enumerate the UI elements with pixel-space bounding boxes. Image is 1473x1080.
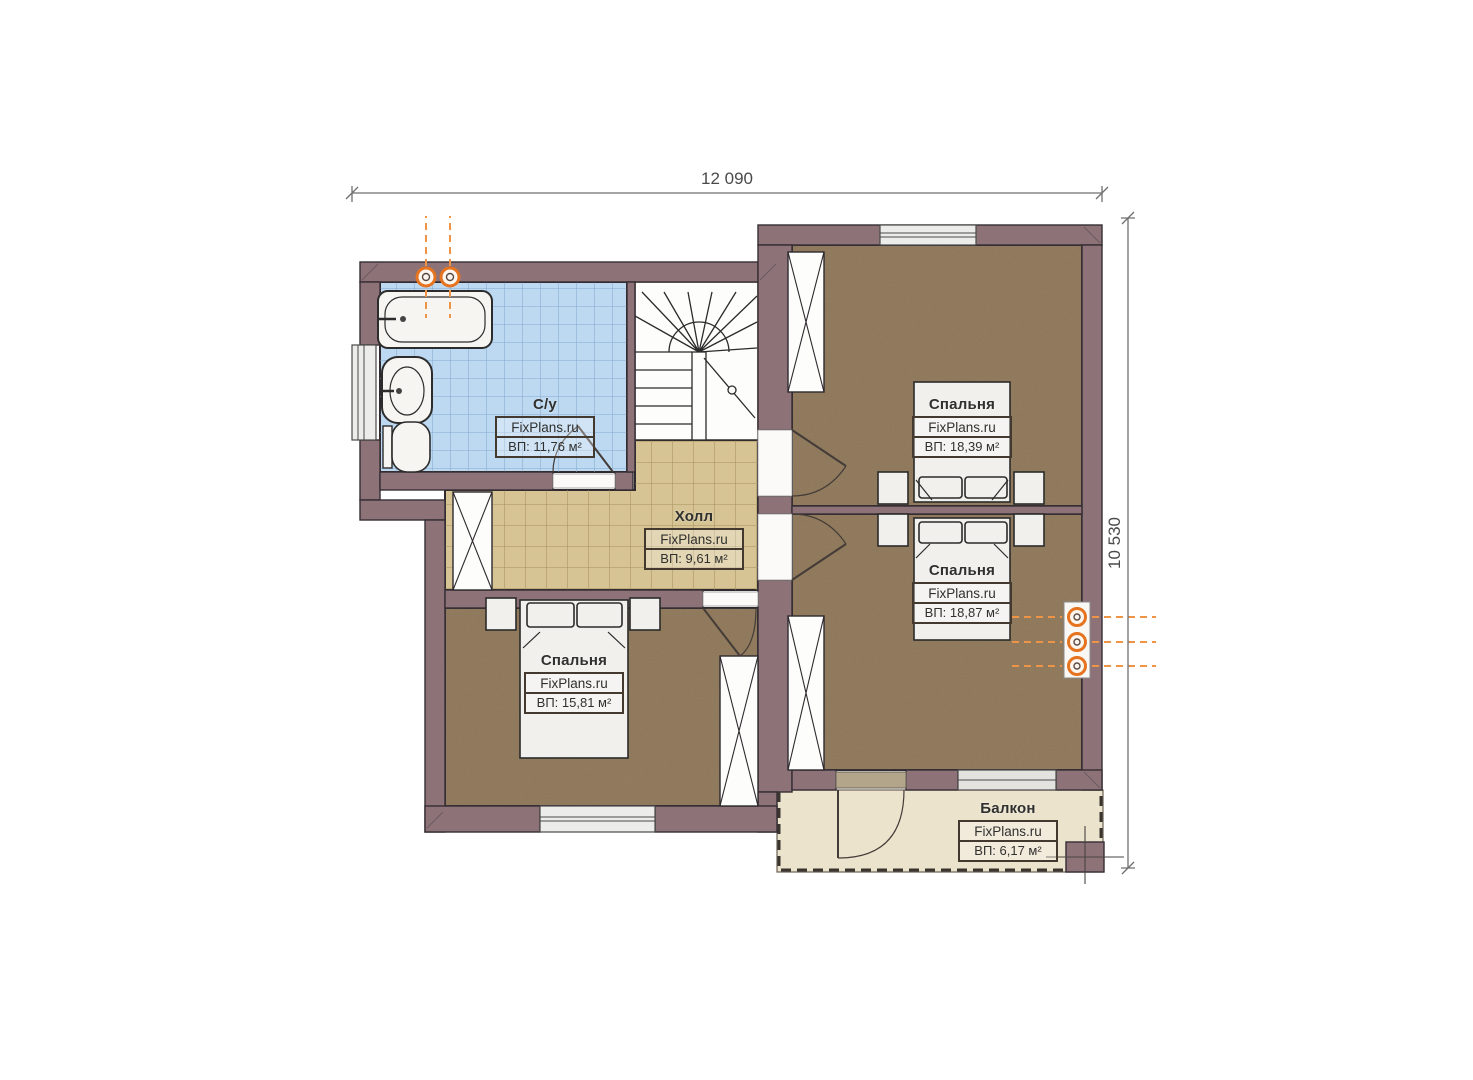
room-area: ВП: 18,87 м² [914,602,1010,622]
room-label-bedroom-left: Спальня FixPlans.ru ВП: 15,81 м² [524,652,624,714]
window-bedroom-top [880,225,976,245]
dimension-height-label: 10 530 [1105,517,1124,569]
room-info-box: FixPlans.ru ВП: 11,76 м² [495,416,595,458]
dimension-width-label: 12 090 [701,169,753,188]
room-info-box: FixPlans.ru ВП: 6,17 м² [958,820,1058,862]
room-info-box: FixPlans.ru ВП: 18,87 м² [912,582,1012,624]
room-label-balcony: Балкон FixPlans.ru ВП: 6,17 м² [958,800,1058,862]
nightstand [1014,472,1044,504]
riser-icon [1069,609,1086,626]
riser-icon [1069,658,1086,675]
brand-watermark: FixPlans.ru [646,530,742,548]
brand-watermark: FixPlans.ru [914,584,1010,602]
room-name: Балкон [958,800,1058,817]
room-name: С/у [495,396,595,413]
room-label-bathroom: С/у FixPlans.ru ВП: 11,76 м² [495,396,595,458]
room-info-box: FixPlans.ru ВП: 18,39 м² [912,416,1012,458]
room-label-hall: Холл FixPlans.ru ВП: 9,61 м² [644,508,744,570]
nightstand [878,472,908,504]
window-bedroom-left-bottom [540,806,655,832]
stair-newel [692,352,706,440]
floor-plan-page: 12 090 10 530 С/у FixPlans.ru ВП: 11,76 … [0,0,1473,1080]
nightstand [878,514,908,546]
room-info-box: FixPlans.ru ВП: 9,61 м² [644,528,744,570]
bathtub-drain [400,316,406,322]
toilet [383,422,430,472]
pillow [965,522,1007,543]
vent-shaft-hall [453,492,492,590]
riser-icon [1069,634,1086,651]
pillow [919,477,962,498]
dimension-right: 10 530 [1105,212,1135,874]
pillow [965,477,1007,498]
room-label-bedroom-mid-right: Спальня FixPlans.ru ВП: 18,87 м² [912,562,1012,624]
room-info-box: FixPlans.ru ВП: 15,81 м² [524,672,624,714]
room-area: ВП: 9,61 м² [646,548,742,568]
balcony-threshold [836,772,906,788]
window-balcony-wall [958,770,1056,790]
brand-watermark: FixPlans.ru [960,822,1056,840]
room-label-bedroom-top-right: Спальня FixPlans.ru ВП: 18,39 м² [912,396,1012,458]
pillow [919,522,962,543]
vent-shaft-bedroom-top-right [788,252,824,392]
pillow [577,603,622,627]
brand-watermark: FixPlans.ru [914,418,1010,436]
room-name: Спальня [524,652,624,669]
stair-break-symbol [728,386,736,394]
riser-icon [417,268,435,286]
window-bathroom-left [352,345,376,440]
bathtub [378,291,492,348]
room-name: Холл [644,508,744,525]
sink [382,357,432,423]
nightstand [630,598,660,630]
room-name: Спальня [912,562,1012,579]
dimension-top: 12 090 [346,169,1108,202]
pillow [527,603,574,627]
nightstand [1014,514,1044,546]
brand-watermark: FixPlans.ru [497,418,593,436]
vent-shaft-bedroom-mid-right [788,616,824,770]
room-area: ВП: 6,17 м² [960,840,1056,860]
room-area: ВП: 11,76 м² [497,436,593,456]
room-area: ВП: 15,81 м² [526,692,622,712]
brand-watermark: FixPlans.ru [526,674,622,692]
vent-shaft-bedroom-left [720,656,758,806]
room-name: Спальня [912,396,1012,413]
room-area: ВП: 18,39 м² [914,436,1010,456]
riser-icon [441,268,459,286]
nightstand [486,598,516,630]
